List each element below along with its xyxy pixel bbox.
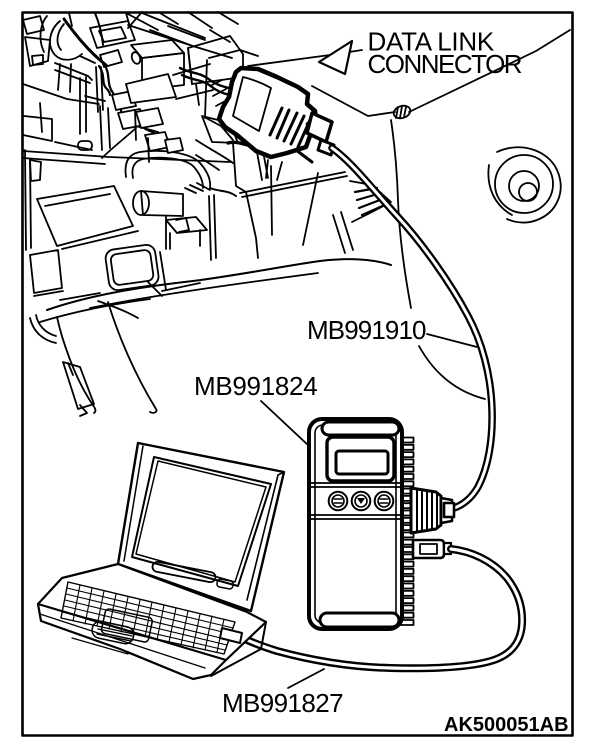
svg-text:MB991824: MB991824 (194, 371, 317, 401)
svg-text:CONNECTOR: CONNECTOR (368, 49, 522, 79)
svg-text:MB991827: MB991827 (222, 688, 343, 718)
svg-text:AK500051AB: AK500051AB (444, 714, 569, 736)
svg-text:MB991910: MB991910 (307, 315, 426, 345)
